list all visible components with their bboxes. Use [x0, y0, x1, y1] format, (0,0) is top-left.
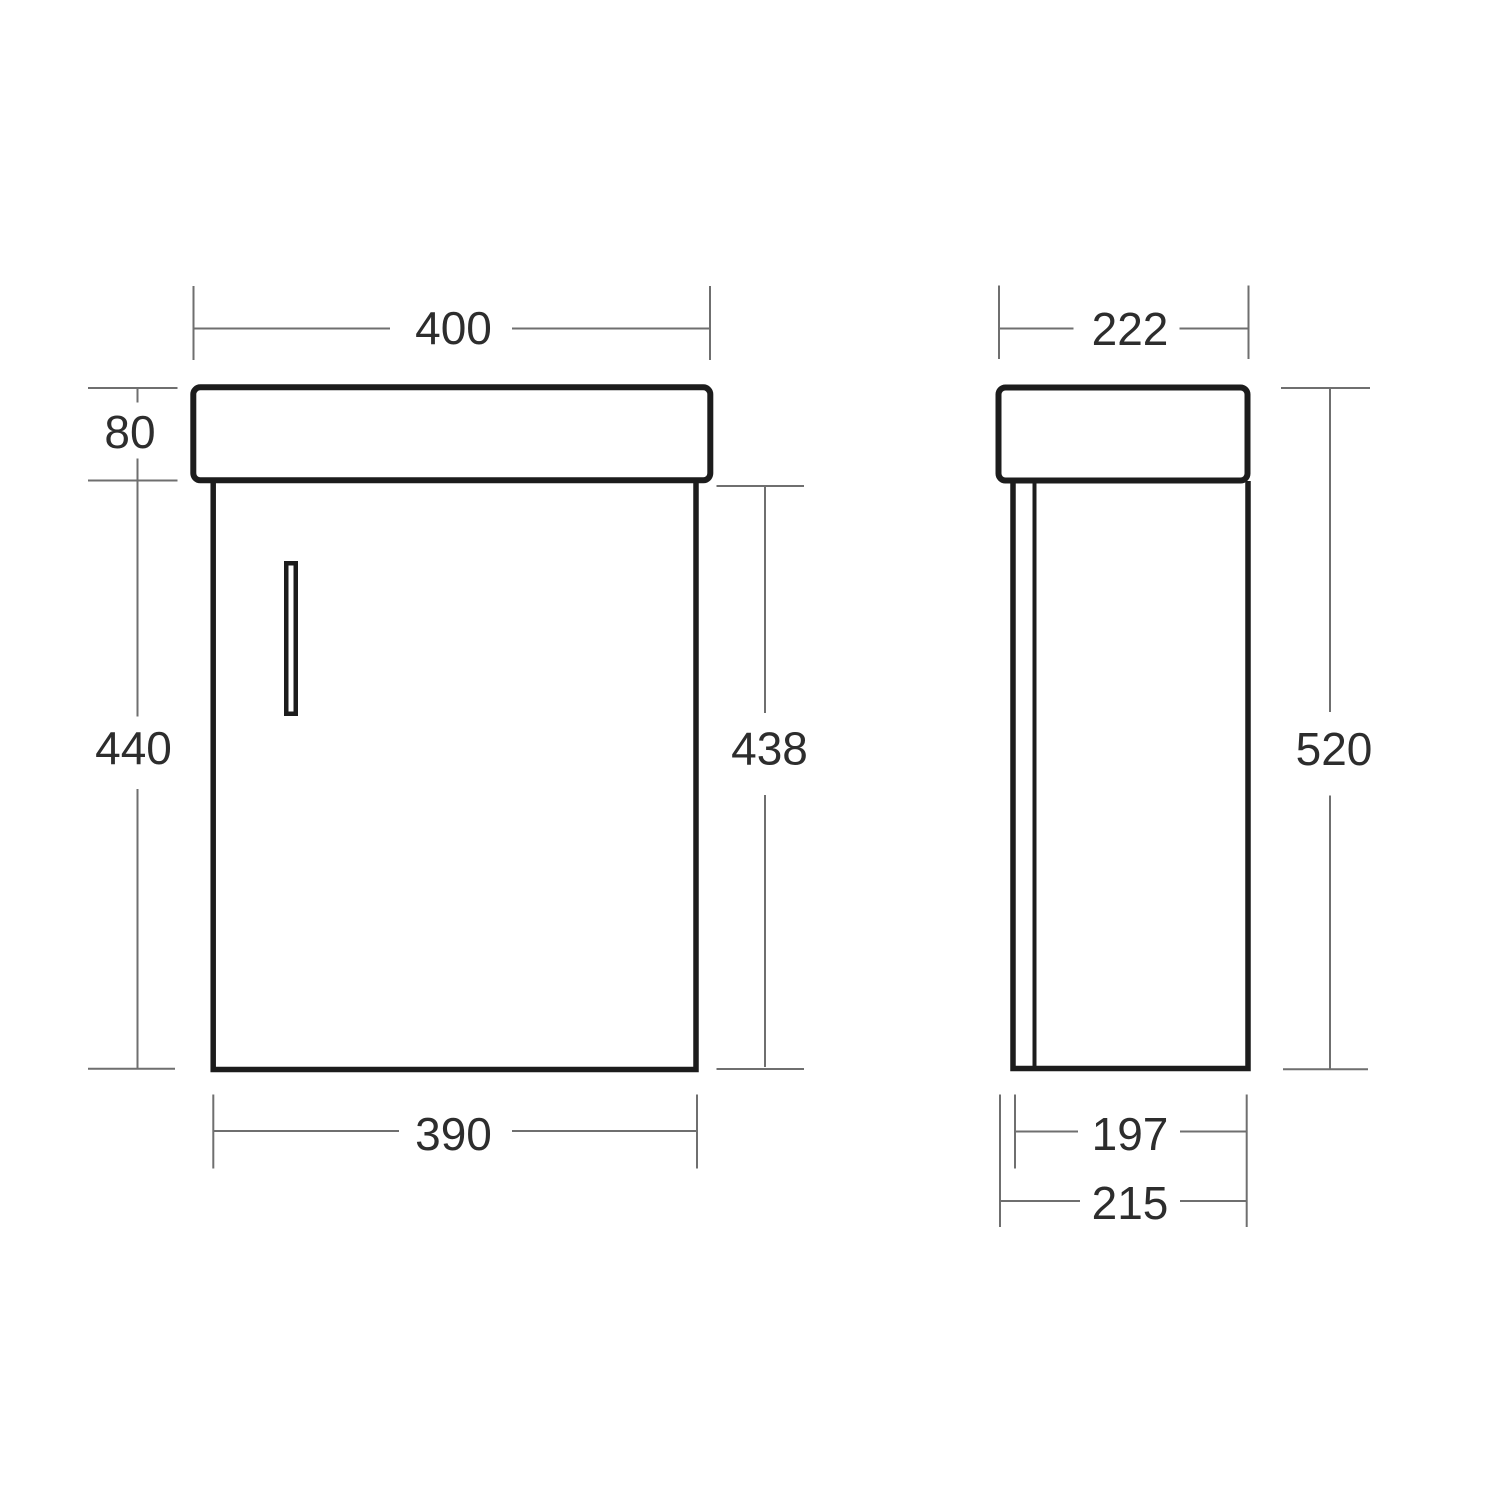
svg-text:438: 438: [731, 723, 808, 775]
svg-text:390: 390: [415, 1108, 492, 1160]
svg-text:197: 197: [1092, 1108, 1169, 1160]
svg-text:215: 215: [1092, 1177, 1169, 1229]
svg-text:440: 440: [95, 722, 172, 774]
svg-text:400: 400: [415, 302, 492, 354]
svg-text:222: 222: [1092, 303, 1169, 355]
svg-text:80: 80: [104, 406, 155, 458]
svg-text:520: 520: [1296, 723, 1373, 775]
